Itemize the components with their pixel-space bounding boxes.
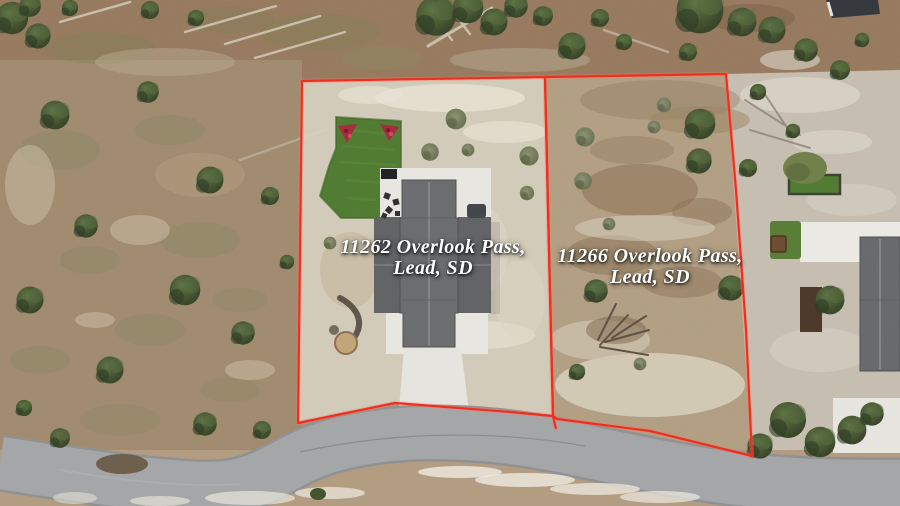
photo-grain [0,0,900,506]
aerial-lot-photo: 11262 Overlook Pass, Lead, SD 11266 Over… [0,0,900,506]
aerial-photo-canvas [0,0,900,506]
